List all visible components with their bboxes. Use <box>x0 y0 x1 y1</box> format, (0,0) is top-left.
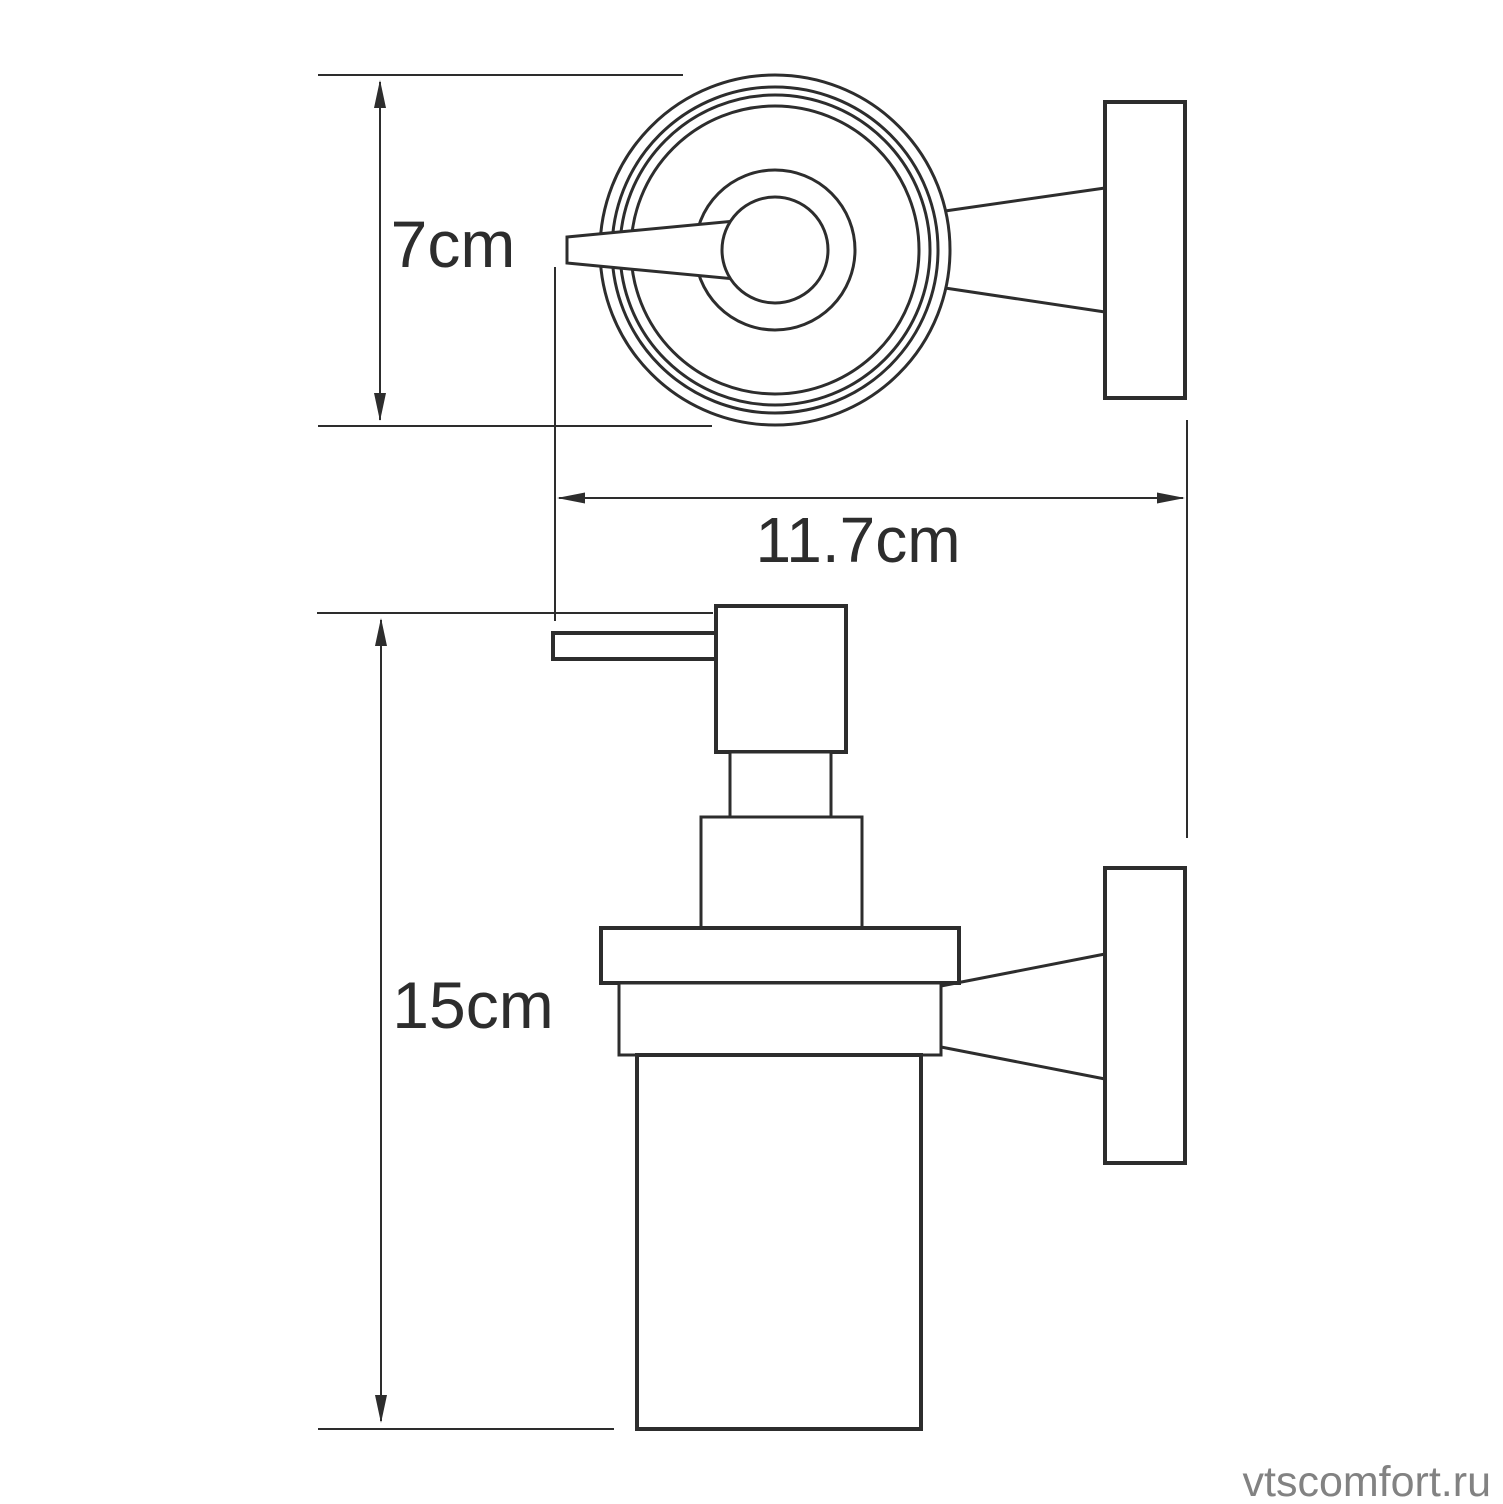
side-view-bottle <box>637 1055 921 1429</box>
dim-diameter-label: 7cm <box>391 207 516 281</box>
side-view-spout <box>553 633 716 659</box>
side-view-pump-collar <box>701 817 862 929</box>
drawing-svg: 7cm 11.7cm 15cm vtscomfort.ru <box>0 0 1503 1504</box>
side-view-holder-plate <box>601 928 959 983</box>
technical-drawing-page: 7cm 11.7cm 15cm vtscomfort.ru <box>0 0 1503 1504</box>
dim-depth-label: 11.7cm <box>755 504 960 576</box>
side-view-wall-plate <box>1105 868 1185 1163</box>
side-view-holder-ring <box>619 983 941 1055</box>
top-view-wall-plate <box>1105 102 1185 398</box>
watermark-text: vtscomfort.ru <box>1243 1458 1492 1504</box>
dim-height-label: 15cm <box>392 968 553 1042</box>
side-view-pump-head <box>716 606 846 752</box>
top-view-pump-top-circle <box>722 197 828 303</box>
side-view-pump-neck <box>730 752 831 817</box>
